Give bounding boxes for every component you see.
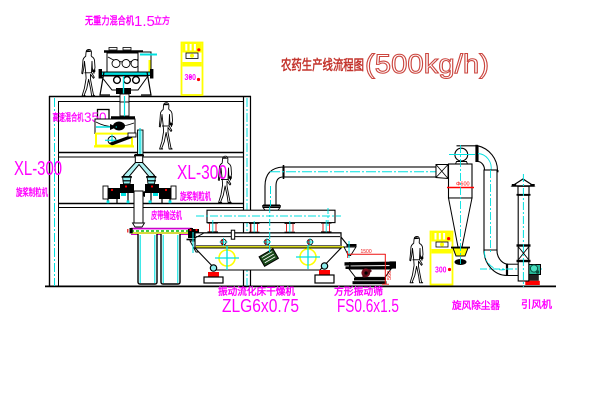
svg-text:560: 560 [387, 271, 393, 280]
svg-text:高速混合机: 高速混合机 [53, 111, 84, 124]
svg-text:XL-300: XL-300 [14, 158, 62, 180]
svg-text:1.5: 1.5 [134, 13, 155, 30]
svg-text:300: 300 [185, 73, 197, 82]
svg-text:引风机: 引风机 [521, 298, 552, 311]
svg-text:旋桨制粒机: 旋桨制粒机 [179, 190, 211, 203]
svg-text:ZLG6x0.75: ZLG6x0.75 [222, 296, 299, 316]
svg-text:农药生产线流程图: 农药生产线流程图 [280, 57, 364, 73]
svg-text:Φ600: Φ600 [456, 182, 470, 188]
svg-text:无重力混合机: 无重力混合机 [84, 14, 134, 27]
svg-text:FS0.6x1.5: FS0.6x1.5 [337, 296, 399, 316]
svg-text:XL-300: XL-300 [177, 162, 227, 184]
svg-text:300: 300 [435, 266, 447, 275]
svg-text:皮带输送机: 皮带输送机 [150, 209, 182, 222]
svg-text:旋风除尘器: 旋风除尘器 [451, 299, 501, 312]
svg-text:旋桨制粒机: 旋桨制粒机 [15, 186, 48, 199]
svg-text:1500: 1500 [361, 249, 372, 255]
svg-text:立方: 立方 [154, 15, 170, 27]
svg-text:(500kg/h): (500kg/h) [365, 49, 489, 79]
